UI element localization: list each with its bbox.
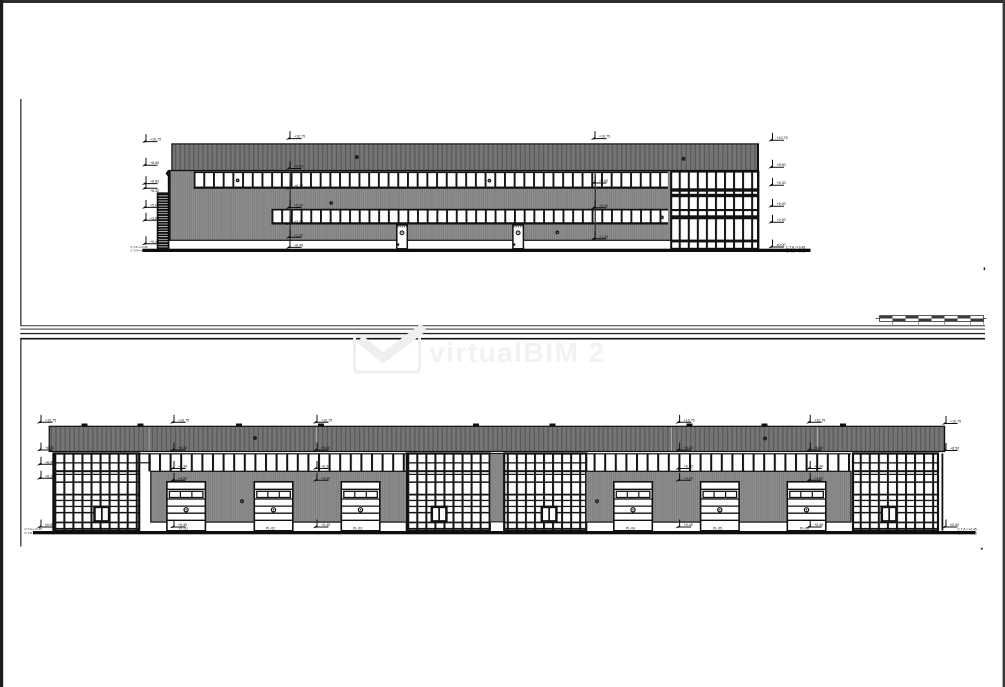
svg-text:+1.20: +1.20 [599,235,608,239]
svg-text:±0.00: ±0.00 [45,523,54,527]
svg-text:+10.75: +10.75 [684,418,695,422]
svg-text:PL-05: PL-05 [713,526,722,530]
svg-text:+4.50: +4.50 [684,476,693,480]
svg-text:PL-02: PL-02 [266,526,275,530]
svg-text:+3.30: +3.30 [294,220,303,224]
svg-text:PL-04: PL-04 [626,526,635,530]
svg-text:+8.50: +8.50 [178,446,187,450]
svg-text:+10.75: +10.75 [45,418,56,422]
svg-text:+6.30: +6.30 [178,465,187,469]
svg-text:+8.50: +8.50 [321,446,330,450]
svg-text:+10.75: +10.75 [294,135,305,139]
svg-text:+5.00: +5.00 [150,203,159,207]
svg-text:+6.60: +6.60 [150,180,159,184]
svg-text:+4.50: +4.50 [321,476,330,480]
svg-text:±0.00: ±0.00 [777,243,786,247]
svg-text:+6.30: +6.30 [150,189,159,193]
svg-text:+2.50: +2.50 [777,218,786,222]
svg-text:+5.00: +5.00 [599,204,608,208]
svg-text:+5.00: +5.00 [777,202,786,206]
svg-text:+0.45: +0.45 [814,523,823,527]
svg-text:+3.60: +3.60 [150,216,159,220]
svg-text:+6.60: +6.60 [599,179,608,183]
svg-text:+8.50: +8.50 [294,165,303,169]
svg-text:PL-03: PL-03 [353,526,362,530]
svg-text:+10.75: +10.75 [599,135,610,139]
svg-text:+10.75: +10.75 [178,418,189,422]
svg-text:+6.30: +6.30 [321,465,330,469]
svg-text:+4.50: +4.50 [178,476,187,480]
svg-text:+0.45: +0.45 [178,523,187,527]
svg-text:+10.75: +10.75 [950,420,961,424]
svg-text:+0.45: +0.45 [150,240,159,244]
svg-text:+8.50: +8.50 [684,446,693,450]
svg-text:+8.50: +8.50 [777,163,786,167]
svg-text:C.T.N.=+0.00: C.T.N.=+0.00 [786,250,806,254]
svg-text:+6.30: +6.30 [294,184,303,188]
svg-text:+10.75: +10.75 [777,136,788,140]
svg-text:+1.20: +1.20 [294,233,303,237]
svg-text:+0.45: +0.45 [684,523,693,527]
svg-text:+0.45: +0.45 [294,243,303,247]
svg-text:+8.50: +8.50 [950,447,959,451]
svg-text:+0.45: +0.45 [321,523,330,527]
svg-text:+6.10: +6.10 [45,474,54,478]
svg-text:+10.75: +10.75 [150,138,161,142]
svg-text:C.T.N.=+0.00: C.T.N.=+0.00 [958,532,978,536]
svg-text:+5.00: +5.00 [294,204,303,208]
svg-text:+4.50: +4.50 [814,476,823,480]
svg-text:+10.75: +10.75 [321,418,332,422]
svg-text:+6.30: +6.30 [814,465,823,469]
svg-text:+6.90: +6.90 [45,460,54,464]
svg-text:C.T.N.=+0.00: C.T.N.=+0.00 [25,531,43,535]
svg-text:virtualBIM 2: virtualBIM 2 [429,337,606,368]
svg-text:+8.50: +8.50 [150,161,159,165]
svg-text:C.T.N.=+0.00: C.T.N.=+0.00 [131,249,148,253]
svg-text:+6.30: +6.30 [684,465,693,469]
svg-text:+8.50: +8.50 [814,446,823,450]
svg-text:+8.50: +8.50 [45,446,54,450]
svg-text:+10.75: +10.75 [814,418,825,422]
svg-text:±0.00: ±0.00 [950,523,959,527]
svg-text:+6.30: +6.30 [777,181,786,185]
